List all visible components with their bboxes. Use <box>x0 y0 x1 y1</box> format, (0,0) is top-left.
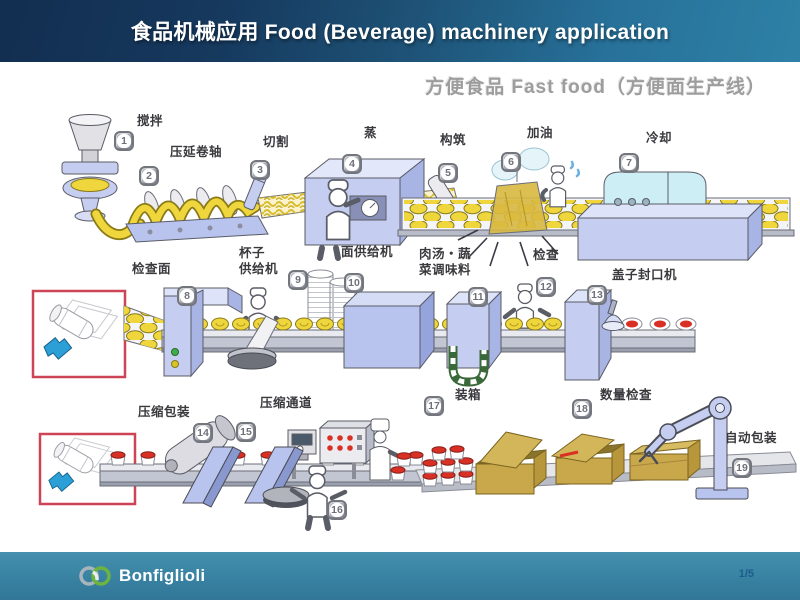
station-label-2: 压延卷轴 <box>170 145 222 161</box>
station-badge-10: 10 <box>344 273 364 293</box>
rolling-machine <box>126 184 268 242</box>
station-label-18: 数量检查 <box>600 388 652 404</box>
station-label-14: 压缩包装 <box>138 405 190 421</box>
slide-subtitle: 方便食品 Fast food（方便面生产线） <box>425 72 766 99</box>
station-badge-5: 5 <box>438 163 458 183</box>
sealed-cups-on-belt <box>622 318 696 330</box>
gearmotor-callout-1 <box>33 291 125 377</box>
station-badge-1: 1 <box>114 131 134 151</box>
page-indicator: 1/5 <box>739 568 754 580</box>
station-label-8: 检查面 <box>132 262 171 278</box>
station-label-10: 面供给机 <box>341 245 393 261</box>
brand-name: Bonfiglioli <box>119 566 205 586</box>
station-badge-8: 8 <box>177 286 197 306</box>
middle-feed-belt <box>124 306 168 352</box>
station-label-7: 冷却 <box>646 131 672 147</box>
station-label-4: 蒸 <box>364 126 377 142</box>
brand-logo: Bonfiglioli <box>78 564 205 588</box>
page-title: 食品机械应用 Food (Beverage) machinery applica… <box>131 16 669 46</box>
station-badge-13: 13 <box>587 285 607 305</box>
station-label-13: 盖子封口机 <box>612 268 677 284</box>
station-badge-18: 18 <box>572 399 592 419</box>
station-badge-12: 12 <box>536 277 556 297</box>
station-label-11: 肉汤・蔬 菜调味料 <box>419 247 471 278</box>
station-badge-16: 16 <box>327 500 347 520</box>
mixer-machine <box>62 115 118 222</box>
station-badge-9: 9 <box>288 270 308 290</box>
title-bar: 食品机械应用 Food (Beverage) machinery applica… <box>0 0 800 62</box>
station-label-5: 构筑 <box>440 133 466 149</box>
footer-bar: Bonfiglioli 1/5 <box>0 552 800 600</box>
station-badge-7: 7 <box>619 153 639 173</box>
station-badge-17: 17 <box>424 396 444 416</box>
station-badge-19: 19 <box>732 458 752 478</box>
station-badge-2: 2 <box>139 166 159 186</box>
station-label-1: 搅拌 <box>137 114 163 130</box>
station-badge-14: 14 <box>193 423 213 443</box>
station-label-9: 杯子 供给机 <box>239 246 278 277</box>
bonfiglioli-logo-icon <box>78 564 112 588</box>
noodle-feeder-machine <box>344 292 434 368</box>
station-label-3: 切割 <box>263 135 289 151</box>
station-badge-6: 6 <box>501 152 521 172</box>
cardboard-boxes <box>476 432 700 494</box>
station-label-15: 压缩通道 <box>260 396 312 412</box>
slide: 食品机械应用 Food (Beverage) machinery applica… <box>0 0 800 600</box>
station-label-6: 加油 <box>527 126 553 142</box>
station-label-17: 装箱 <box>455 388 481 404</box>
station-badge-4: 4 <box>342 154 362 174</box>
station-badge-11: 11 <box>468 287 488 307</box>
cooling-machine <box>578 172 762 260</box>
station-badge-3: 3 <box>250 160 270 180</box>
station-badge-15: 15 <box>236 422 256 442</box>
cup-stack-group <box>391 446 473 486</box>
station-label-19: 自动包装 <box>725 431 777 447</box>
station-label-12: 检查 <box>533 248 559 264</box>
